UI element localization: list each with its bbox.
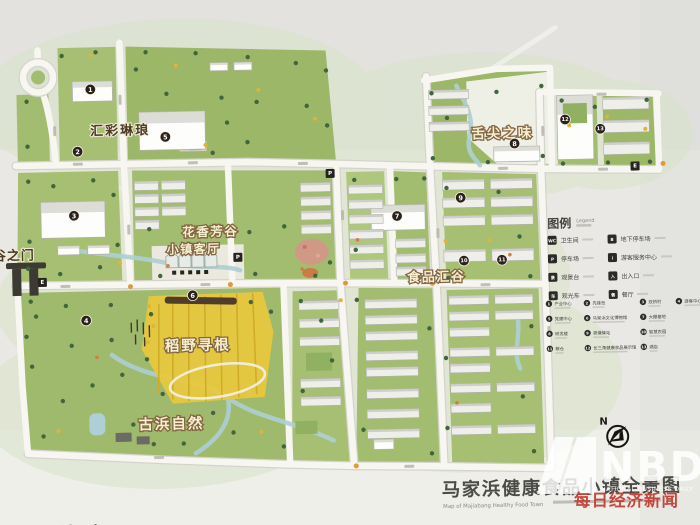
- road-name-label: [154, 456, 164, 459]
- legend-point-number: 10: [641, 330, 647, 334]
- legend-facility-sub-bar: [582, 238, 593, 240]
- road-name-label: [598, 168, 608, 171]
- area-label-shejian: 舌尖之味: [471, 124, 533, 142]
- legend-facility-glyph: P: [551, 257, 554, 262]
- building-roof: [134, 181, 158, 184]
- building-roof: [135, 220, 159, 223]
- legend-facility-label: 观景台: [561, 273, 579, 281]
- legend-point-sub-bar: [648, 305, 660, 307]
- legend-facility-label: 出入口: [621, 272, 639, 280]
- road-name-label: [60, 285, 70, 288]
- legend-facility-label: 餐厅: [622, 291, 634, 299]
- legend-facility-sub-bar: [661, 255, 672, 257]
- legend-point-sub-bar: [592, 306, 604, 308]
- road-name-label: [541, 126, 544, 136]
- legend-facility-label: 卫生间: [561, 236, 579, 244]
- legend-facility-sub-bar: [643, 274, 654, 276]
- area-label-huicai: 汇彩琳琅: [90, 122, 150, 139]
- legend-point-number: 11: [547, 347, 553, 351]
- legend-facility-glyph: 入: [610, 274, 616, 279]
- area-label-daoye: 稻野寻根: [165, 336, 231, 355]
- road-name-label: [298, 162, 308, 165]
- legend-point-sub-bar: [555, 337, 567, 339]
- area-label-huaxiang: 花香芳谷: [182, 223, 238, 239]
- legend-point-number: 12: [585, 346, 591, 350]
- map-marker-number: 13: [597, 126, 605, 132]
- facility-marker-glyph: E: [633, 163, 637, 169]
- building-roof: [162, 206, 186, 209]
- legend-facility-sub-bar: [637, 293, 648, 295]
- building-roof: [162, 193, 186, 196]
- area-label-shipin: 食品汇谷: [407, 269, 465, 286]
- pond: [89, 413, 105, 435]
- legend-facility-label: 停车场: [561, 255, 579, 263]
- building-roof: [374, 439, 394, 442]
- road-name-label: [127, 225, 130, 235]
- courtyard: [295, 421, 317, 434]
- map-marker-number: 6: [190, 292, 195, 300]
- building-roof: [135, 207, 159, 210]
- facility-marker-glyph: P: [328, 171, 332, 177]
- map-marker-number: 8: [512, 140, 517, 148]
- area-label-gubang: 古浜自然: [138, 414, 204, 433]
- facility-marker-glyph: E: [40, 280, 44, 286]
- map-marker-number: 10: [460, 258, 468, 264]
- facility-marker-glyph: P: [236, 255, 240, 261]
- road-name-label: [436, 228, 439, 238]
- road-name-label: [341, 210, 344, 220]
- field-strip: [165, 297, 237, 305]
- map-canvas: 汇彩琳琅 舌尖之味 花香芳谷 小镇客厅 食品汇谷 稻野寻根 古浜自然 谷之门 1…: [0, 0, 700, 525]
- building-roof: [234, 62, 252, 65]
- legend-facility-label: 游客服务中心: [621, 253, 657, 262]
- map-marker-number: 9: [458, 194, 463, 202]
- road-name-label: [53, 126, 56, 136]
- road-name-label: [597, 93, 607, 96]
- legend-subtitle-bar: [576, 224, 591, 227]
- map-marker-number: 11: [498, 257, 506, 263]
- courtyard: [306, 352, 332, 371]
- building-roof: [161, 180, 185, 183]
- legend-facility-sub-bar: [583, 257, 594, 259]
- road-name-label: [118, 95, 121, 105]
- legend-title: 图例: [547, 215, 571, 230]
- legend-facility-sub-bar: [655, 237, 666, 239]
- legend-point-sub-bar: [649, 350, 657, 352]
- compass-n-label: N: [599, 417, 608, 428]
- building-roof: [139, 111, 205, 124]
- legend-facility-label: 地下停车场: [621, 235, 651, 244]
- building-roof: [135, 194, 159, 197]
- building-roof: [88, 245, 110, 248]
- nbd-brand-chinese: 每日经济新闻: [574, 490, 679, 510]
- map-marker-number: 1: [88, 86, 93, 94]
- map-photo: 汇彩琳琅 舌尖之味 花香芳谷 小镇客厅 食品汇谷 稻野寻根 古浜自然 谷之门 1…: [0, 0, 700, 525]
- legend-facility-sub-bar: [583, 275, 594, 277]
- map-marker-number: 2: [75, 148, 80, 156]
- road-name-label: [498, 167, 508, 170]
- road-name-label: [73, 163, 83, 166]
- map-marker-number: 4: [84, 317, 89, 325]
- building-roof: [58, 246, 80, 249]
- road-name-label: [188, 161, 198, 164]
- area-label-gate: 谷之门: [0, 248, 35, 265]
- road-name-label: [200, 283, 210, 286]
- map-marker-number: 7: [395, 212, 400, 220]
- map-marker-number: 12: [561, 117, 569, 123]
- legend-facility-label: 观光车: [562, 292, 580, 300]
- legend-point-sub-bar: [555, 352, 563, 354]
- map-marker-number: 3: [72, 212, 77, 220]
- nbd-brand-text: NBD: [600, 443, 700, 491]
- legend-facility-sub-bar: [583, 294, 594, 296]
- legend-point-number: 13: [641, 345, 647, 349]
- area-label-keting: 小镇客厅: [167, 241, 221, 257]
- legend-facility-glyph: B: [610, 237, 613, 242]
- road-name-label: [480, 283, 490, 286]
- road-name-label: [404, 465, 414, 468]
- legend-facility-glyph: WC: [548, 238, 556, 243]
- building-roof: [210, 63, 228, 66]
- legend-subtitle: Legend: [576, 218, 594, 224]
- map-marker-number: 5: [163, 133, 168, 141]
